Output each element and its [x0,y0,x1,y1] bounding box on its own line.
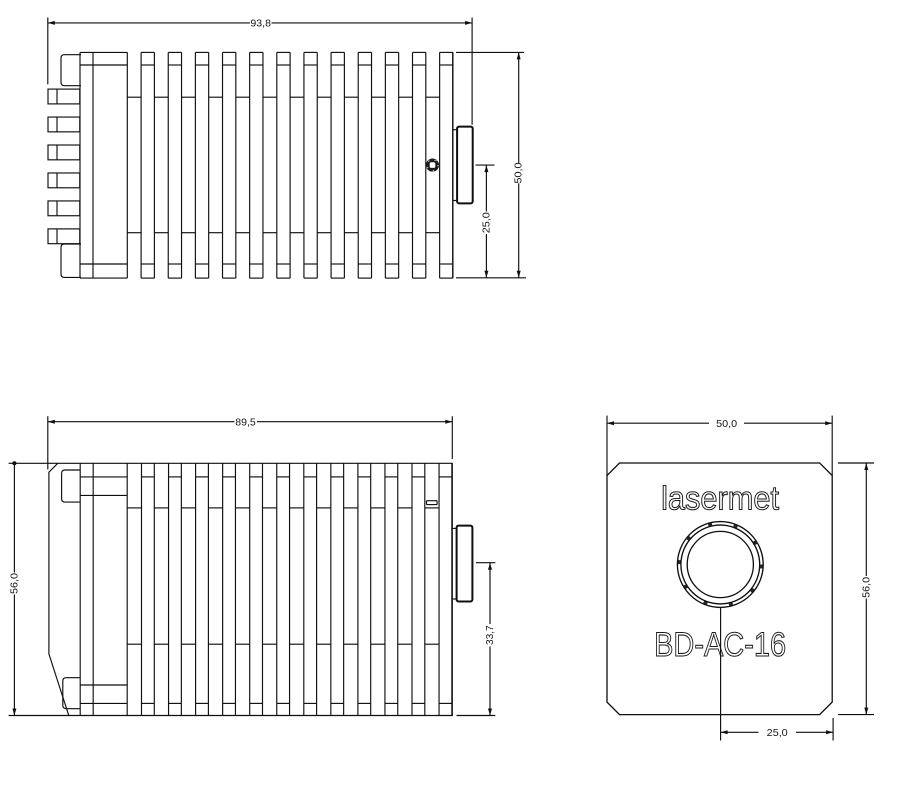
svg-text:50,0: 50,0 [716,418,737,430]
svg-text:56,0: 56,0 [860,577,872,598]
svg-text:lasermet: lasermet [661,480,779,517]
svg-text:50,0: 50,0 [513,162,525,183]
svg-text:25,0: 25,0 [767,727,788,739]
svg-text:93,8: 93,8 [250,18,271,30]
svg-text:56,0: 56,0 [8,573,20,594]
svg-text:89,5: 89,5 [235,417,256,429]
svg-text:33,7: 33,7 [484,625,496,645]
svg-text:25,0: 25,0 [480,212,492,233]
